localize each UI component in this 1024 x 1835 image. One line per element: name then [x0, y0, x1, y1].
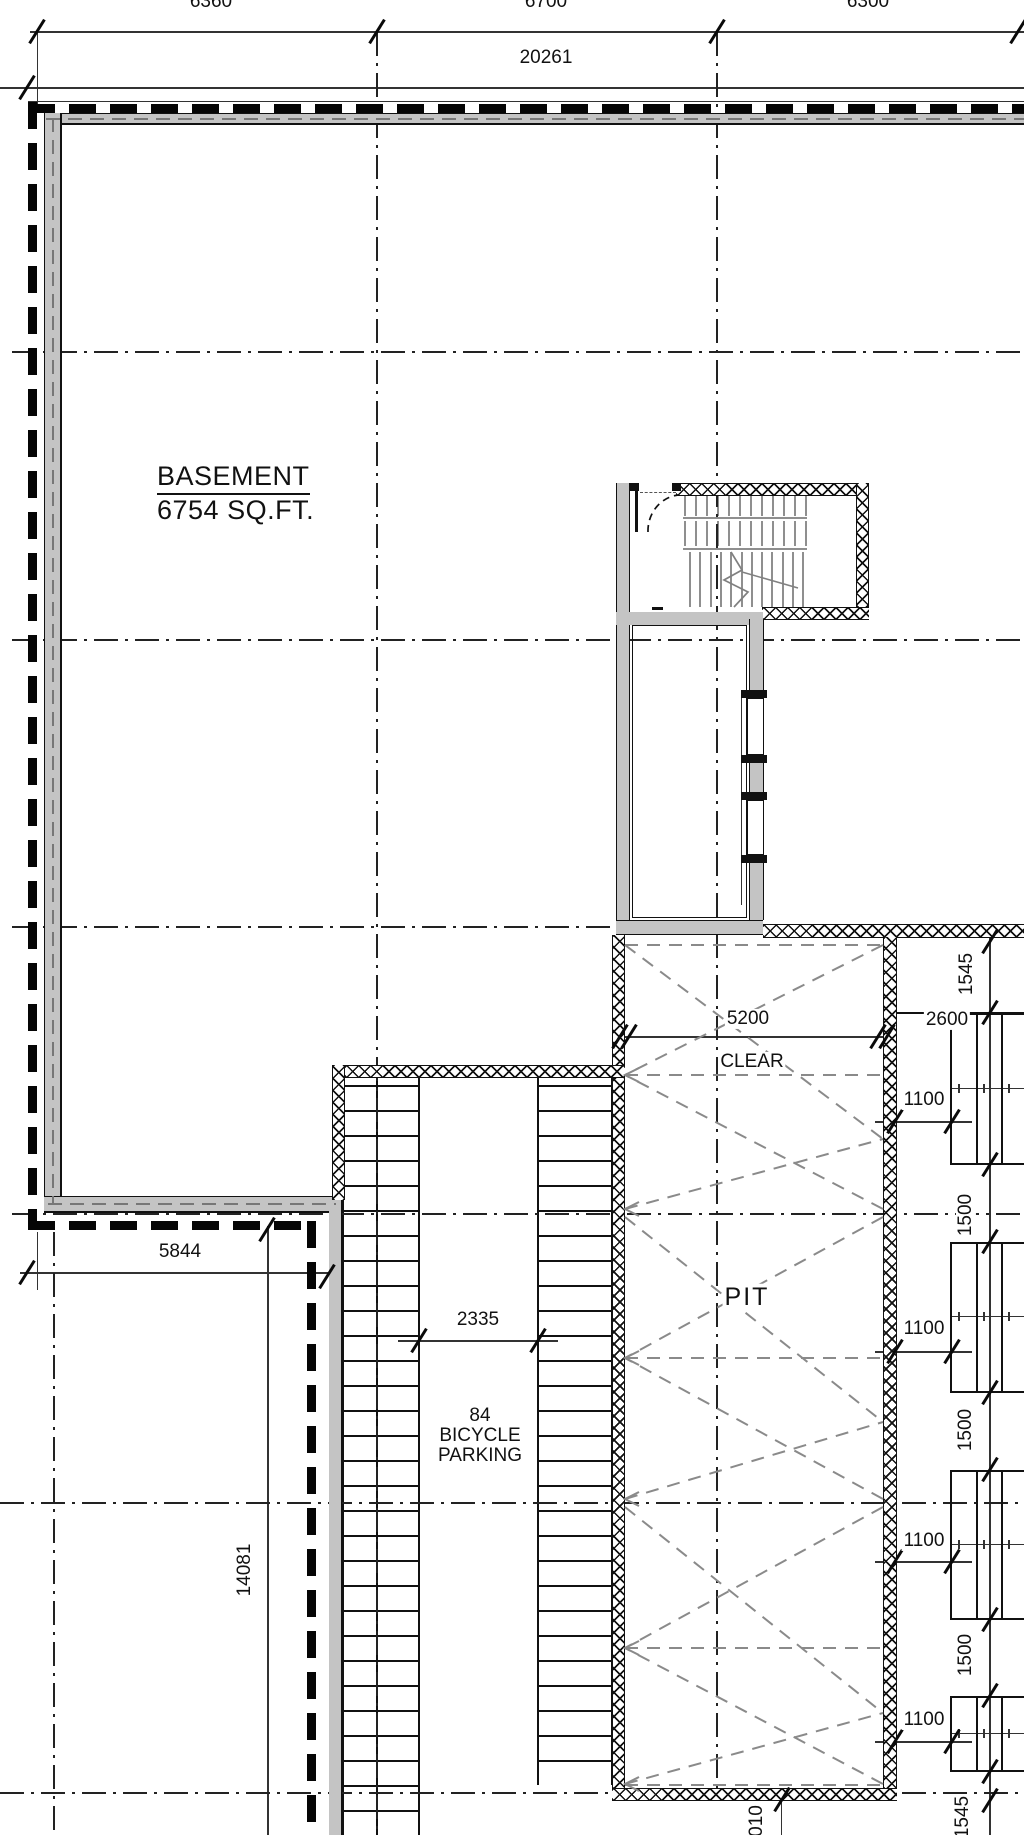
pit-label: PIT — [723, 1284, 772, 1311]
dim-top-overall: 20261 — [518, 48, 575, 68]
bike-rack-line — [538, 1660, 612, 1662]
bike-rack-line — [343, 1535, 419, 1537]
bike-rack-line — [343, 1185, 419, 1187]
ext-line-5844-l — [37, 1232, 38, 1290]
stall-divider — [976, 1242, 978, 1393]
door-opening-dashes — [640, 492, 676, 493]
elevator-door2-cap-bottom — [741, 855, 767, 863]
bike-rack-line — [343, 1810, 419, 1812]
bike-rack-line — [343, 1685, 419, 1687]
dim-5200: 5200 — [725, 1009, 771, 1029]
basement-floor-plan: 6360 6700 6300 20261 BASEMENT 6754 SQ.FT… — [0, 0, 1024, 1835]
dim-clear: CLEAR — [718, 1052, 785, 1072]
bike-rack-line — [538, 1485, 612, 1487]
bike-rack-line — [538, 1560, 612, 1562]
bike-rack-line — [343, 1110, 419, 1112]
dim-line-top-bays — [30, 31, 1024, 33]
bike-rack-line — [538, 1260, 612, 1262]
bike-rack-line — [343, 1085, 419, 1087]
bike-rack-line — [538, 1360, 612, 1362]
wall-centerline-top — [46, 118, 1024, 120]
bike-rack-line — [343, 1510, 419, 1512]
bike-rack-line — [538, 1685, 612, 1687]
bike-rack-line — [343, 1660, 419, 1662]
bike-rack-line — [538, 1510, 612, 1512]
stair-break-diag — [742, 572, 798, 588]
door-jamb-right — [672, 483, 681, 491]
pit-top-wall-gray — [616, 920, 763, 935]
dim-line-5844 — [20, 1272, 334, 1274]
dim-1100-3: 1100 — [902, 1531, 947, 1551]
dim-14081: 14081 — [235, 1542, 255, 1599]
bike-rack-line — [538, 1110, 612, 1112]
bike-rack-line — [538, 1185, 612, 1187]
bike-wall-left-lower — [329, 1200, 342, 1835]
bike-rack-line — [343, 1160, 419, 1162]
dim-top-bay1: 6360 — [188, 0, 234, 12]
bike-rack-line — [343, 1485, 419, 1487]
dim-1545-bottom: 1545 — [953, 1794, 973, 1835]
dim-line-top-overall — [0, 87, 1024, 89]
stall-divider — [1001, 1013, 1003, 1165]
bike-rack-line — [538, 1535, 612, 1537]
bike-rack-line — [343, 1210, 419, 1212]
bike-line2: BICYCLE — [438, 1426, 522, 1446]
elevator-cab-outline — [632, 625, 747, 918]
bike-rack-line — [538, 1635, 612, 1637]
dim-1500-2: 1500 — [956, 1407, 976, 1453]
bike-rack-line — [538, 1160, 612, 1162]
ext-line-top-left — [37, 32, 38, 112]
bike-rack-line — [343, 1335, 419, 1337]
bike-count: 84 — [438, 1406, 522, 1426]
bike-rack-line — [538, 1135, 612, 1137]
bike-rack-line — [538, 1335, 612, 1337]
bike-wall-top — [333, 1065, 625, 1078]
wall-centerline-bottom-left — [48, 1203, 336, 1205]
bike-rack-line — [538, 1210, 612, 1212]
property-line-top — [28, 104, 1024, 113]
parking-stall-group — [950, 1013, 1024, 1165]
dim-1100-1: 1100 — [902, 1090, 947, 1110]
elevator-door-track — [741, 698, 742, 905]
parking-stall-group — [950, 1470, 1024, 1620]
dim-top-bay2: 6700 — [523, 0, 569, 12]
dim-1100-2: 1100 — [902, 1319, 947, 1339]
bike-rack-line — [343, 1135, 419, 1137]
bike-rack-line — [538, 1460, 612, 1462]
property-line-left — [28, 102, 37, 1230]
dim-2600: 2600 — [924, 1010, 970, 1030]
property-line-south — [307, 1221, 316, 1835]
bike-rack-line — [343, 1635, 419, 1637]
elevator-door2-cap-top — [741, 792, 767, 800]
dim-1500-1: 1500 — [956, 1192, 976, 1238]
stair-break-line — [724, 552, 748, 607]
bike-rack-line — [538, 1610, 612, 1612]
bike-rack-line — [538, 1310, 612, 1312]
stall-divider — [976, 1470, 978, 1620]
bike-rack-line — [538, 1285, 612, 1287]
bike-rack-line — [343, 1610, 419, 1612]
bike-rack-line — [343, 1360, 419, 1362]
bike-rack-line — [538, 1410, 612, 1412]
bike-rack-line — [538, 1760, 612, 1762]
slab-edge-top — [28, 101, 1024, 102]
stall-divider — [1001, 1696, 1003, 1772]
bike-rack-line — [343, 1285, 419, 1287]
exterior-wall-bottom-left — [44, 1196, 342, 1213]
dim-1545-top: 1545 — [957, 951, 977, 997]
parking-stall-group — [950, 1242, 1024, 1393]
elevator-door1-panel — [747, 698, 764, 755]
grid-line-h3 — [12, 926, 616, 928]
bike-rack-line — [538, 1435, 612, 1437]
dim-line-2335 — [398, 1340, 558, 1342]
wall-centerline-left — [52, 118, 54, 1204]
dim-line-14081 — [267, 1226, 269, 1835]
bike-rack-line — [343, 1410, 419, 1412]
bike-rack-line — [538, 1385, 612, 1387]
bike-rack-line — [538, 1710, 612, 1712]
elevator-door2-panel — [747, 800, 764, 855]
parking-stall-group — [950, 1696, 1024, 1772]
stair-wall-tick — [652, 607, 663, 610]
bike-rack-line — [343, 1235, 419, 1237]
bike-rack-line — [343, 1435, 419, 1437]
door-swing-arc — [648, 495, 678, 532]
bike-rack-line — [343, 1385, 419, 1387]
bike-rack-line — [343, 1260, 419, 1262]
bike-rack-edge — [418, 1078, 420, 1835]
room-area: 6754 SQ.FT. — [157, 495, 314, 526]
dim-5844: 5844 — [157, 1242, 203, 1262]
stall-divider — [976, 1696, 978, 1772]
bike-rack-line — [343, 1585, 419, 1587]
elevator-door1-cap-bottom — [741, 755, 767, 763]
bike-rack-line — [343, 1560, 419, 1562]
door-leaf — [635, 486, 638, 532]
bike-rack-line — [538, 1235, 612, 1237]
stair-detail-overlay — [600, 470, 880, 640]
stall-divider — [1001, 1470, 1003, 1620]
stall-divider — [1001, 1242, 1003, 1393]
bike-wall-left — [332, 1065, 345, 1200]
bike-rack-line — [343, 1735, 419, 1737]
dim-1100-4: 1100 — [902, 1710, 947, 1730]
bike-rack-line — [343, 1310, 419, 1312]
dim-2335: 2335 — [455, 1310, 501, 1330]
dim-top-bay3: 6300 — [845, 0, 891, 12]
bike-rack-line — [538, 1085, 612, 1087]
stall-divider — [976, 1013, 978, 1165]
bike-parking-label: 84 BICYCLE PARKING — [436, 1406, 524, 1466]
elevator-shaft-right-wall — [749, 619, 764, 920]
grid-line-v1 — [376, 32, 378, 1835]
bike-rack-line — [343, 1710, 419, 1712]
dim-1500-3: 1500 — [956, 1632, 976, 1678]
dim-bottom-cut: 010 — [747, 1803, 767, 1835]
grid-line-h1 — [12, 351, 1024, 353]
bike-line3: PARKING — [438, 1446, 522, 1466]
bike-rack-line — [343, 1460, 419, 1462]
bike-rack-line — [343, 1760, 419, 1762]
elevator-door1-cap-top — [741, 690, 767, 698]
bike-rack-line — [343, 1785, 419, 1787]
bike-rack-line — [538, 1735, 612, 1737]
grid-line-v3 — [53, 1232, 55, 1835]
bike-rack-line — [538, 1585, 612, 1587]
room-title: BASEMENT — [157, 461, 310, 495]
